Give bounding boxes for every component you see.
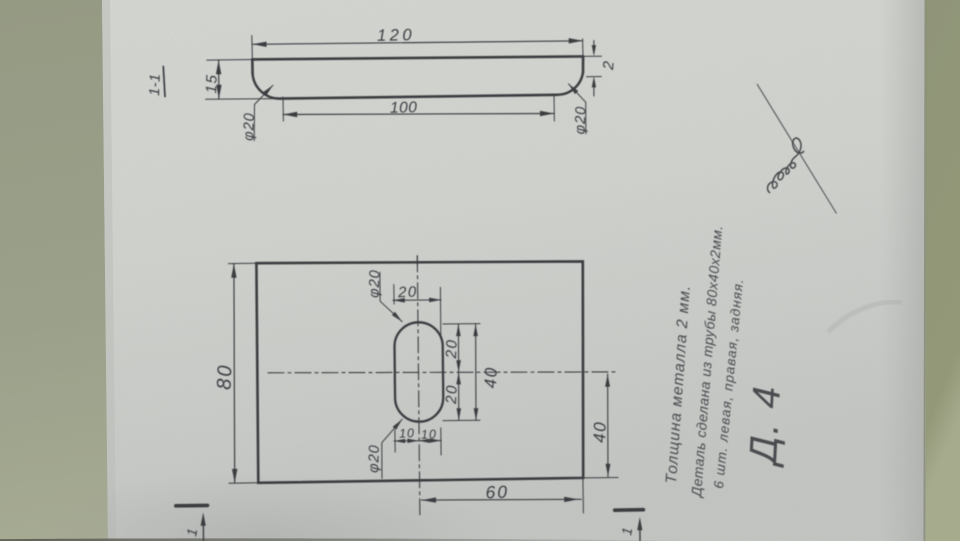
svg-text:80: 80 [214,363,237,390]
svg-text:100: 100 [390,99,418,117]
svg-text:1-1: 1-1 [147,73,164,96]
svg-text:φ20: φ20 [241,112,258,141]
svg-text:40: 40 [481,366,501,389]
svg-text:φ20: φ20 [573,106,590,135]
svg-text:40: 40 [590,421,610,444]
svg-text:Д. 4: Д. 4 [742,384,789,469]
svg-text:120: 120 [377,26,415,45]
svg-text:φ20: φ20 [367,269,384,298]
svg-text:20: 20 [443,338,461,359]
svg-text:10: 10 [399,426,415,441]
svg-text:φ20: φ20 [366,444,383,473]
svg-text:15: 15 [203,73,221,93]
svg-text:20: 20 [443,384,461,405]
svg-text:60: 60 [485,482,509,503]
svg-text:10: 10 [421,427,437,442]
svg-text:20: 20 [397,284,418,302]
